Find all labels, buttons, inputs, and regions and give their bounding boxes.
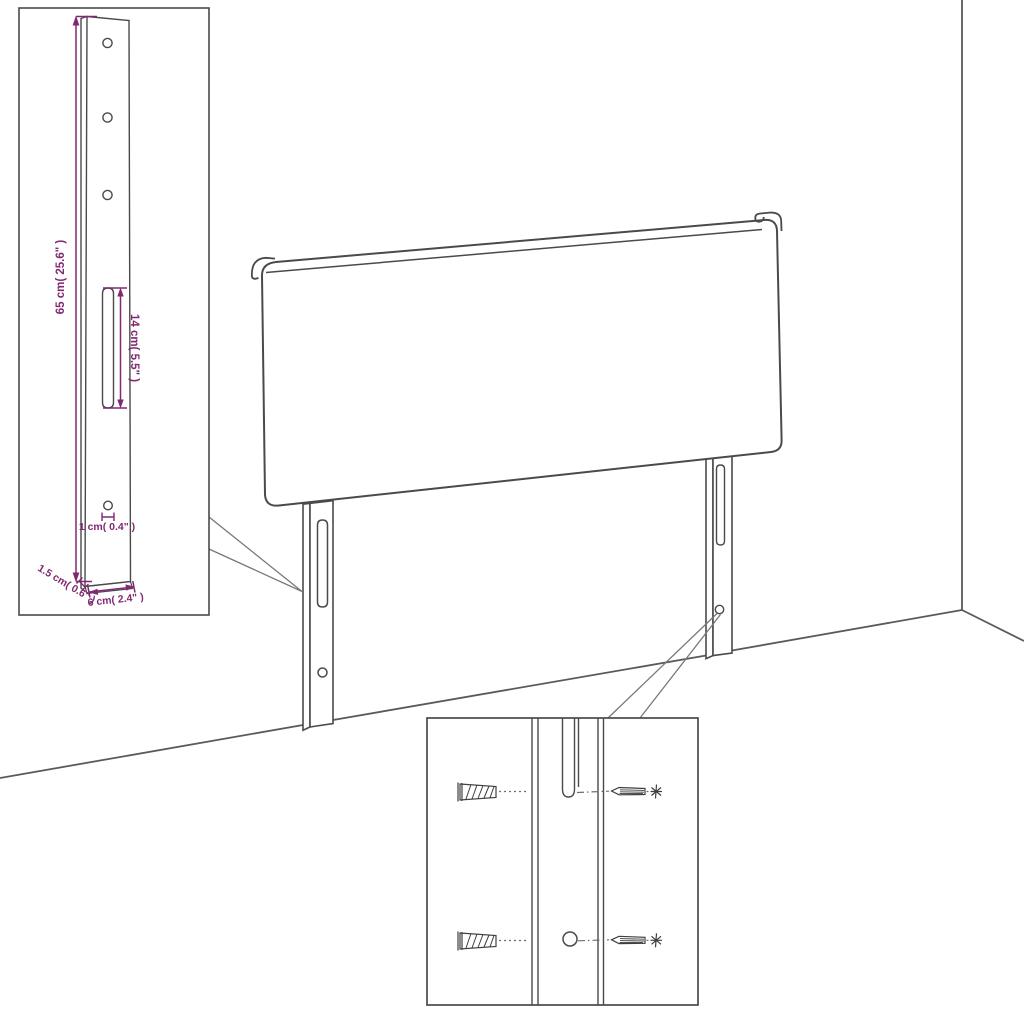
floor-line-right xyxy=(962,610,1024,641)
headboard-left-leg xyxy=(303,501,333,731)
headboard-panel xyxy=(252,213,782,506)
hardware-inset xyxy=(427,718,698,1005)
left-leg-front-face xyxy=(310,501,333,727)
callout-lines xyxy=(209,517,721,718)
headboard-assembly-diagram: 65 cm( 25.6" ) 14 cm( 5.5" ) 1 cm( 0.4" … xyxy=(0,0,1024,1024)
diagram-svg: 65 cm( 25.6" ) 14 cm( 5.5" ) 1 cm( 0.4" … xyxy=(0,0,1024,1024)
leg-detail-drawing xyxy=(81,17,133,594)
dimension-hole-label: 1 cm( 0.4" ) xyxy=(79,521,135,533)
dimension-slot-label: 14 cm( 5.5" ) xyxy=(128,314,140,382)
callout-to-hardware-detail xyxy=(608,614,721,719)
headboard-front-face xyxy=(262,220,782,506)
leg-detail-inset: 65 cm( 25.6" ) 14 cm( 5.5" ) 1 cm( 0.4" … xyxy=(19,8,209,615)
callout-to-leg-detail xyxy=(209,517,302,592)
left-leg-side-face xyxy=(303,503,310,730)
dimension-height-label: 65 cm( 25.6" ) xyxy=(55,240,67,315)
